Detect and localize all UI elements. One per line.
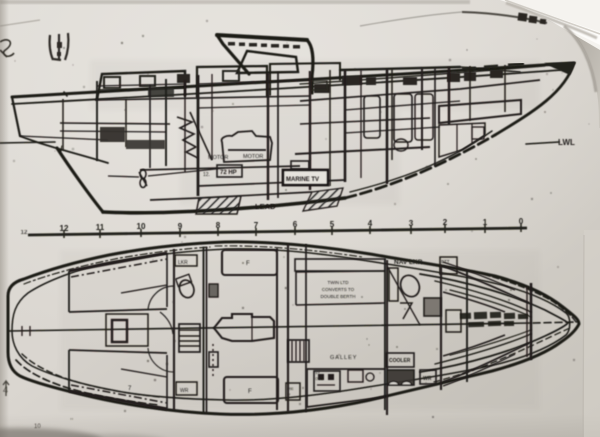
svg-text:RE: RE bbox=[288, 386, 294, 391]
svg-text:2: 2 bbox=[443, 218, 448, 227]
svg-text:MARINE TV: MARINE TV bbox=[286, 177, 319, 183]
svg-text:0: 0 bbox=[519, 217, 524, 226]
svg-text:OVE: OVE bbox=[315, 376, 324, 381]
svg-text:8: 8 bbox=[216, 221, 221, 230]
svg-text:COOLER: COOLER bbox=[389, 358, 411, 364]
svg-text:1: 1 bbox=[483, 218, 488, 227]
svg-text:4: 4 bbox=[368, 219, 373, 228]
svg-text:LEAD: LEAD bbox=[255, 202, 276, 211]
svg-text:,,: ,, bbox=[70, 415, 74, 421]
svg-text:72 HP: 72 HP bbox=[220, 170, 237, 176]
svg-text:11: 11 bbox=[96, 223, 105, 232]
svg-text:WR: WR bbox=[423, 376, 432, 382]
svg-text:MOTOR: MOTOR bbox=[208, 155, 228, 161]
svg-text:TWIN LTD: TWIN LTD bbox=[328, 280, 350, 285]
svg-text:MOTOR: MOTOR bbox=[243, 154, 263, 160]
svg-text:12.: 12. bbox=[203, 172, 210, 178]
svg-text:LWL: LWL bbox=[558, 138, 575, 147]
svg-text:GALLEY: GALLEY bbox=[330, 355, 357, 361]
svg-text:10: 10 bbox=[137, 222, 146, 231]
svg-text:NAV LKR: NAV LKR bbox=[394, 259, 423, 266]
svg-text:7: 7 bbox=[254, 221, 259, 230]
svg-text:5: 5 bbox=[330, 220, 335, 229]
svg-text:ST: ST bbox=[315, 370, 321, 375]
svg-text:10: 10 bbox=[34, 424, 41, 430]
svg-text:F: F bbox=[246, 261, 250, 267]
svg-text:LKR: LKR bbox=[178, 260, 188, 266]
svg-text:DOUBLE BERTH: DOUBLE BERTH bbox=[321, 294, 356, 299]
svg-text:6: 6 bbox=[293, 220, 298, 229]
svg-text:CONVERTS TO: CONVERTS TO bbox=[322, 287, 355, 292]
svg-text:12: 12 bbox=[21, 230, 28, 236]
svg-text:F: F bbox=[248, 389, 252, 395]
svg-text:9: 9 bbox=[178, 222, 183, 231]
svg-text:BTT: BTT bbox=[441, 259, 450, 264]
svg-text:WR: WR bbox=[180, 388, 189, 394]
svg-text:12: 12 bbox=[60, 224, 69, 233]
svg-text:3: 3 bbox=[409, 219, 414, 228]
